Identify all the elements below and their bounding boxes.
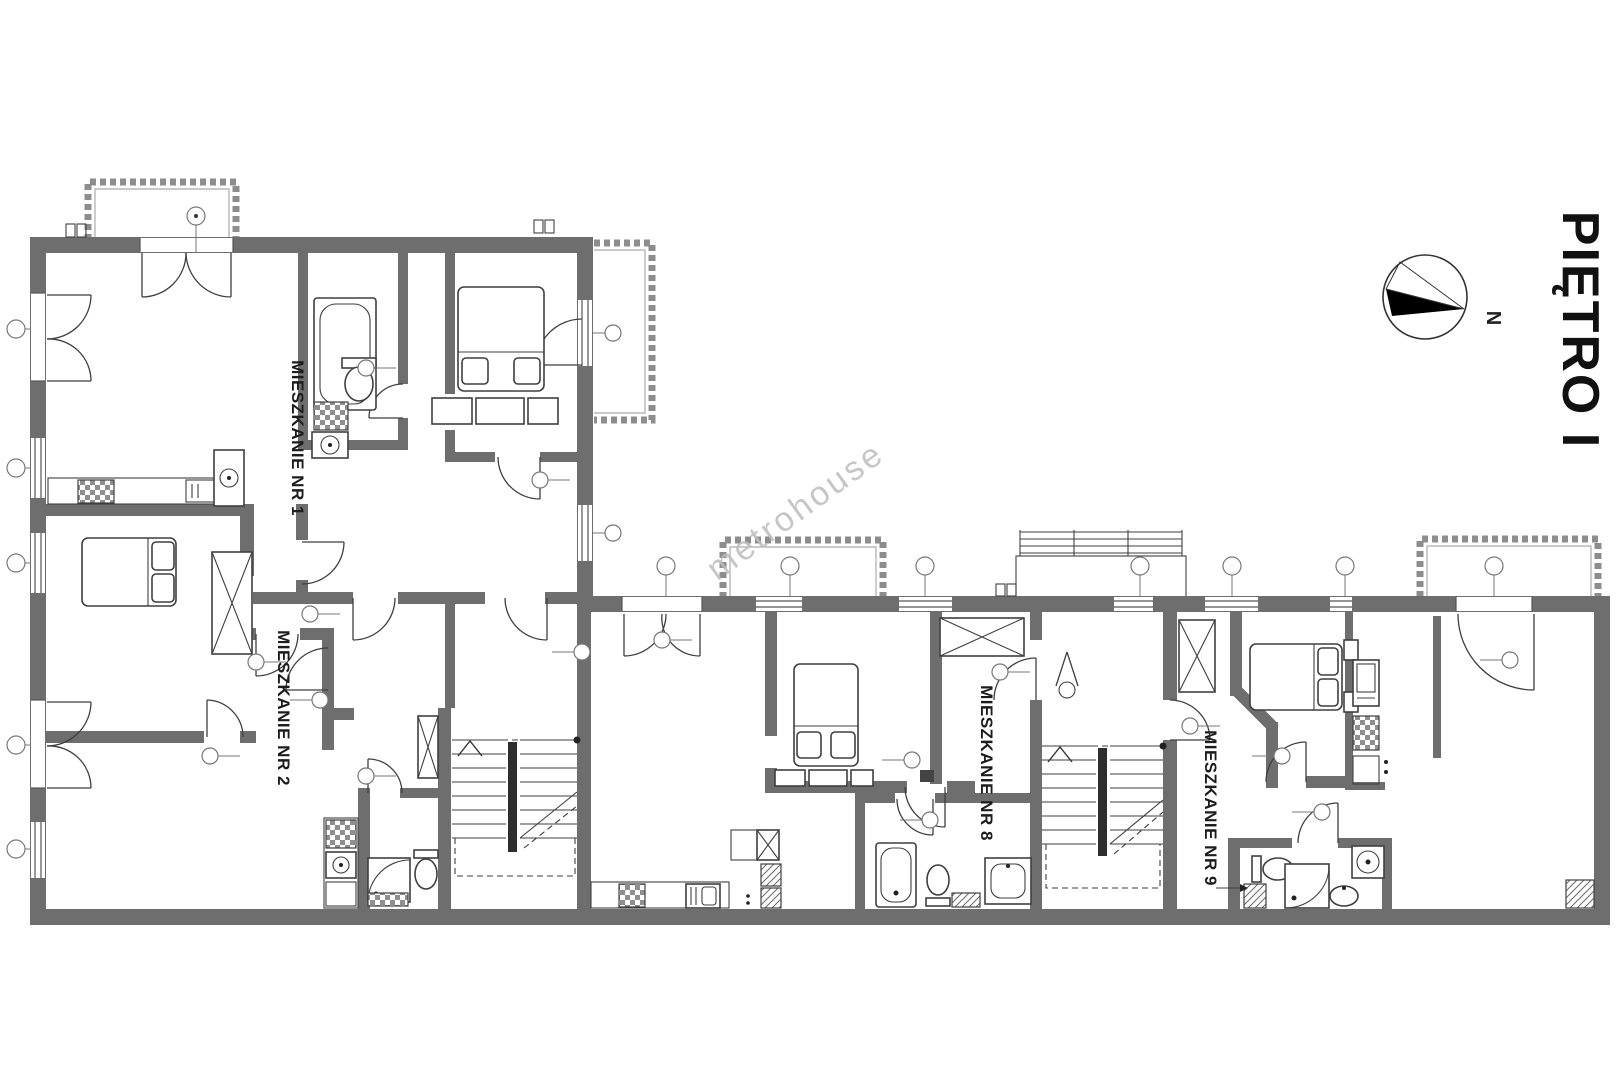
washing-machine-icon xyxy=(686,884,720,908)
dimension-marker xyxy=(781,557,799,597)
stair-rail xyxy=(508,742,517,852)
kitchen-counter xyxy=(48,450,244,506)
door-marker xyxy=(532,472,570,488)
door-marker xyxy=(358,768,396,784)
sink-icon xyxy=(368,893,408,906)
kitchen-cabinet xyxy=(1353,756,1388,784)
dimension-marker xyxy=(7,840,31,858)
door-marker xyxy=(202,748,240,764)
wardrobe-icon xyxy=(212,552,252,654)
kitchen-counter xyxy=(591,830,781,908)
fridge-icon xyxy=(1353,660,1379,706)
stove-icon xyxy=(619,884,645,907)
stove-icon xyxy=(78,480,114,503)
compass-north-label: N xyxy=(1482,311,1504,325)
compass: N xyxy=(1383,255,1504,339)
washbasin-icon xyxy=(1330,886,1358,906)
door-arc xyxy=(142,253,231,297)
apartment-label-1: MIESZKANIE NR 1 xyxy=(288,360,307,516)
door-marker xyxy=(1292,804,1330,820)
shaft-icon xyxy=(1566,880,1594,908)
door-marker xyxy=(302,606,340,622)
dimension-marker xyxy=(593,525,621,541)
dimension-marker xyxy=(7,736,31,754)
balcony-railing-middle xyxy=(1016,530,1186,602)
dimension-marker xyxy=(7,320,31,338)
vent-icon xyxy=(534,220,554,233)
balcony-apartment9 xyxy=(1420,539,1598,597)
sink-icon xyxy=(314,402,348,430)
door-marker xyxy=(358,360,396,376)
vent-icon xyxy=(66,224,86,237)
apartment-label-9: MIESZKANIE NR 9 xyxy=(1201,730,1220,886)
page-title: PIĘTRO I xyxy=(1551,211,1609,449)
stove-icon xyxy=(326,820,356,848)
dimension-marker xyxy=(1336,557,1354,597)
compass-needle-icon xyxy=(1386,289,1464,316)
stairwell-2 xyxy=(1042,743,1167,889)
wardrobe-icon xyxy=(1179,620,1215,692)
toilet-icon xyxy=(926,865,950,906)
door-marker xyxy=(552,644,590,660)
floor-plan-page: MIESZKANIE NR 1 MIESZKANIE NR 2 MIESZKAN… xyxy=(0,0,1620,1080)
door-arc xyxy=(505,598,547,640)
entry-double-door-icon xyxy=(1056,652,1078,698)
washing-machine-icon xyxy=(312,432,348,458)
sink-icon xyxy=(952,893,980,907)
dimension-marker xyxy=(1131,557,1149,597)
dimension-marker xyxy=(1485,557,1503,597)
wardrobe-icon xyxy=(757,830,779,860)
door-arc xyxy=(47,295,91,381)
door-marker xyxy=(1480,652,1518,668)
washbasin-icon xyxy=(985,858,1031,904)
radiator-icon xyxy=(920,770,934,782)
dimension-marker xyxy=(916,557,934,597)
bed-icon xyxy=(775,664,873,786)
washing-machine-icon xyxy=(1352,846,1384,878)
dimension-marker xyxy=(7,459,31,477)
vent-icon xyxy=(996,584,1016,596)
door-marker xyxy=(882,752,920,768)
stove-icon xyxy=(1353,716,1379,750)
door-arc xyxy=(302,542,344,584)
dimension-marker xyxy=(657,557,675,597)
bed-icon xyxy=(82,538,176,606)
bathtub-icon xyxy=(876,843,916,907)
kitchen-counter xyxy=(324,818,358,908)
walls xyxy=(30,237,1610,925)
stairwell-1 xyxy=(452,737,581,877)
balcony-apartment1-side xyxy=(594,243,652,420)
wardrobe-icon xyxy=(418,716,438,778)
apartment-labels: MIESZKANIE NR 1 MIESZKANIE NR 2 MIESZKAN… xyxy=(274,360,1220,886)
toilet-icon xyxy=(414,850,438,889)
doors xyxy=(47,253,1534,843)
door-arc xyxy=(47,702,91,788)
door-marker xyxy=(900,812,938,828)
door-arc xyxy=(207,700,243,737)
dimension-marker xyxy=(1223,557,1241,597)
dimension-marker xyxy=(593,325,621,341)
door-marker xyxy=(290,692,328,708)
floor-plan-canvas: MIESZKANIE NR 1 MIESZKANIE NR 2 MIESZKAN… xyxy=(0,0,1620,1080)
balcony-top-left xyxy=(88,182,236,240)
stair-rail xyxy=(1098,748,1107,856)
wardrobe-icon xyxy=(940,618,1024,656)
door-arc xyxy=(1458,614,1534,690)
apartment-label-2: MIESZKANIE NR 2 xyxy=(274,630,293,786)
door-arc xyxy=(353,598,395,640)
sink-icon xyxy=(1216,884,1266,908)
shower-icon xyxy=(1285,864,1329,908)
bed-icon xyxy=(1250,640,1358,712)
apartment-label-8: MIESZKANIE NR 8 xyxy=(977,685,996,841)
dimension-marker xyxy=(7,554,31,572)
